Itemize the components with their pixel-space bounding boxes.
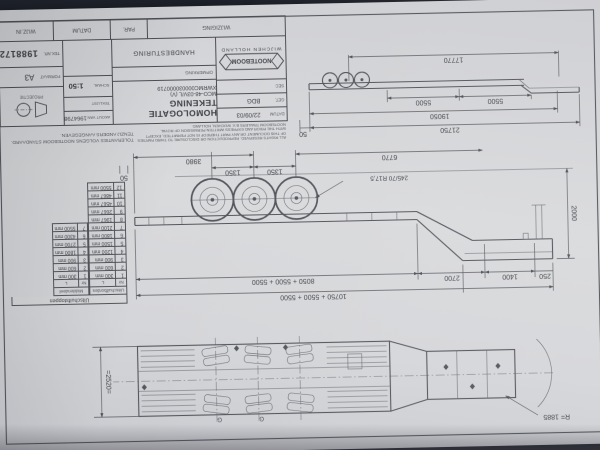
bordes-table: Uitschuifbordes Nr L 1300 mm2600 mm3900 … [87, 182, 127, 296]
plan-g-label-2: G [217, 416, 222, 422]
company-logo-cell: NOOTEBOOM WIJCHEN HOLLAND [216, 36, 285, 79]
overview-wheels [322, 72, 369, 88]
side-dims-lower: 1350 1350 50 6770 3980 [119, 146, 483, 214]
rev-datum-label: DATUM [53, 20, 110, 40]
opmerking-label: OPMERKING [112, 65, 216, 81]
dim-2700: 2700 [444, 274, 460, 281]
midden-subtitle: Middendeel [53, 287, 89, 296]
akout-value: 1964798 [64, 115, 87, 121]
table-cell: 600 mm [90, 262, 116, 271]
plan-hatch-rear [141, 350, 196, 412]
table-cell: 1967 mm [89, 214, 115, 223]
table-row: 2600 mm [53, 263, 89, 272]
table-cell: 6 [115, 230, 126, 238]
table-cell: 8 [115, 214, 126, 222]
teknr-label: TEK.NR. [38, 51, 62, 57]
datum-row: DATUM 22/09/03 [218, 106, 287, 121]
table-row: 51500 mm [89, 238, 126, 247]
overview-view: 21750 50 19050 5500 5500 17770 [297, 50, 580, 137]
table-row: 52700 mm [52, 239, 88, 248]
title-block-main: DATUM 22/09/03 GET. BDG SEC [0, 35, 288, 127]
table-cell: 300 mm [90, 270, 116, 279]
plan-radius-dim: R= 1885 [506, 394, 571, 420]
dim-1350a: 1350 [267, 167, 283, 174]
table-cell: 6 [78, 231, 88, 239]
dim-17770: 17770 [444, 56, 464, 63]
table-cell: 900 mm [53, 255, 79, 264]
table-cell: 11 [114, 190, 125, 198]
disclaimer-text: ALL RIGHTS RESERVED. REPRODUCTION OR DIS… [133, 121, 288, 143]
teklijst-label: TEKLIJST [84, 101, 112, 107]
get-value: BDG [247, 97, 261, 104]
table-row: 104567 mm [88, 198, 125, 207]
table-cell: 1800 mm [89, 230, 115, 239]
par-label: PAR. [110, 19, 147, 39]
dim-21750: 21750 [440, 126, 460, 133]
dim-3980: 3980 [186, 157, 202, 164]
bordes-subtitle: Uitschuifbordes [90, 286, 127, 295]
akout-row: AKOUT VAN 1964798 [64, 110, 112, 125]
table-cell: 1200 mm [89, 246, 115, 255]
table-cell: 1 [79, 271, 89, 279]
table-row: 61800 mm [89, 230, 126, 239]
table-row: 64300 mm [52, 231, 88, 240]
dim-50-side: 50 [120, 174, 128, 181]
landing-gear [532, 205, 547, 239]
table-row: 114867 mm [88, 190, 125, 199]
col-nr: Nr [79, 279, 89, 287]
table-cell: 7 [115, 222, 126, 230]
table-row: 1300 mm [53, 271, 89, 280]
table-cell: 2 [116, 262, 127, 270]
teknr-row: TEK.NR. 1988172 [0, 41, 62, 67]
photo-background: .ln{stroke:#53555c;stroke-width:1.1;fill… [0, 0, 600, 450]
side-dims-upper: 10750 + 5500 + 5500 250 1400 2700 8050 +… [135, 221, 553, 304]
side-dim-height: 2000 [555, 168, 578, 258]
dim-5500a: 5500 [487, 97, 503, 104]
table-cell: 4567 mm [88, 198, 114, 207]
table-cell: 5500 mm [52, 223, 78, 232]
title-block-right-column: PROJECTIE FORMAAT A3 TEK.NR. 1988172 [0, 41, 63, 126]
formaat-value: A3 [24, 73, 34, 82]
kingpin [523, 233, 528, 239]
table-cell: 3 [79, 255, 89, 263]
tyre-label: 245/70 R17,5 [315, 174, 408, 198]
table-cell: 4 [78, 247, 88, 255]
table-row: 125500 mm [88, 182, 125, 191]
tolerance-note: TOLERANTIES VOLGENS NOOTEBOOM STANDAARD.… [0, 124, 134, 146]
plan-hatch-front [327, 346, 388, 408]
col-l: L [53, 279, 79, 288]
dim-r1885: R= 1885 [543, 412, 570, 420]
dim-2000: 2000 [570, 205, 577, 221]
table-cell: 900 mm [89, 254, 115, 263]
table-cell: 5500 mm [88, 182, 114, 191]
dim-5500b: 5500 [415, 98, 431, 105]
col-nr: Nr [116, 278, 127, 286]
title-block-center-column: HOMOLOGATIE TEKENING MCO-48-03V/L (V) XW… [111, 38, 218, 124]
table-row: 92667 mm [88, 206, 125, 215]
table-cell: 12 [114, 182, 125, 190]
get-label: GET. [260, 97, 286, 103]
dim-19050: 19050 [430, 112, 450, 119]
title-block-scale-column: AKOUT VAN 1964798 TEKLIJST SCHAAL 1:50 [62, 40, 113, 125]
table-row: 3900 mm [53, 255, 89, 264]
sec-row: SEC [217, 78, 286, 93]
table-cell: 5 [78, 239, 88, 247]
table-cell: 3 [115, 254, 126, 262]
projection-symbol-icon [14, 100, 50, 119]
projectie-label: PROJECTIE [20, 94, 44, 99]
table-cell: 7 [78, 223, 88, 231]
plan-view: =2520= R= 1885 G G [92, 330, 570, 429]
schaal-row: SCHAAL 1:50 [63, 75, 111, 97]
table-cell: 2667 mm [88, 206, 114, 215]
datum-label: DATUM [261, 111, 287, 117]
table-cell: 1 [116, 270, 127, 278]
table-cell: 4 [115, 246, 126, 254]
col-l: L [90, 278, 116, 287]
title-block: ALL RIGHTS RESERVED. REPRODUCTION OR DIS… [0, 16, 288, 146]
company-location: WIJCHEN HOLLAND [220, 45, 281, 51]
company-name: NOOTEBOOM [231, 57, 271, 64]
dim-250: 250 [539, 272, 551, 279]
table-row: 2600 mm [90, 262, 127, 271]
table-cell: 5 [115, 238, 126, 246]
dim-2520: =2520= [104, 370, 111, 394]
get-row: GET. BDG [218, 92, 287, 107]
table-cell: 2100 mm [89, 222, 115, 231]
akout-label: AKOUT VAN [87, 115, 113, 121]
teklijst-row: TEKLIJST [64, 96, 112, 111]
extension-stop-tables: Uitschuifstoppen Uitschuifbordes Nr L 13… [9, 182, 128, 306]
drawing-title: HOMOLOGATIE TEKENING [113, 98, 217, 120]
drawing-title-cell: HOMOLOGATIE TEKENING MCO-48-03V/L (V) XW… [112, 79, 217, 124]
formaat-row: FORMAAT A3 [0, 66, 63, 87]
dim-1350b: 1350 [225, 168, 241, 175]
dim-6770: 6770 [382, 153, 398, 160]
table-row: 75500 mm [52, 223, 88, 232]
dim-tyre: 245/70 R17,5 [370, 174, 408, 182]
table-row: 81967 mm [89, 214, 126, 223]
side-view: 245/70 R17,5 10750 + 5500 + 5500 [119, 144, 578, 304]
dim-50-overview: 50 [299, 130, 307, 137]
schaal-value: 1:50 [68, 82, 83, 91]
table-cell: 4300 mm [52, 231, 78, 240]
table-cell: 2700 mm [52, 239, 78, 248]
table-row: 1300 mm [90, 270, 127, 279]
table-cell: 10 [114, 198, 125, 206]
dim-10750-sum: 10750 + 5500 + 5500 [280, 292, 347, 300]
nooteboom-logo-icon: NOOTEBOOM [218, 52, 284, 70]
title-block-left-column: DATUM 22/09/03 GET. BDG SEC [215, 36, 286, 121]
table-cell: 1800 mm [53, 247, 79, 256]
dim-8050-sum: 8050 + 5500 + 5500 [252, 277, 315, 285]
teknr-value: 1988172 [0, 49, 38, 60]
datum-value: 22/09/03 [236, 111, 260, 119]
table-row: 41800 mm [53, 247, 89, 256]
overview-dims: 21750 50 19050 5500 5500 17770 [297, 50, 580, 137]
midden-table: Middendeel Nr L 1300 mm2600 mm3900 mm418… [51, 222, 89, 296]
handbesturing-note: HANDBESTURING [112, 38, 216, 67]
table-cell: 2 [79, 263, 89, 271]
drawing-sheet: .ln{stroke:#53555c;stroke-width:1.1;fill… [0, 0, 600, 450]
sec-label: SEC [260, 83, 286, 89]
table-row: 41200 mm [89, 246, 126, 255]
formaat-label: FORMAAT [34, 74, 62, 80]
drawing-subtitle: MCO-48-03V/L (V) XWRMC000030000719 [113, 84, 217, 98]
table-cell: 4867 mm [88, 190, 114, 199]
table-cell: 300 mm [53, 271, 79, 280]
table-cell: 600 mm [53, 263, 79, 272]
wijzin-label: WIJZ.IN [0, 21, 53, 41]
table-cell: 9 [114, 206, 125, 214]
table-row: 72100 mm [89, 222, 126, 231]
schaal-label: SCHAAL [84, 83, 112, 89]
table-cell: 1500 mm [89, 238, 115, 247]
projection-cell: PROJECTIE [0, 86, 63, 126]
wijziging-label: WIJZIGING [147, 16, 285, 38]
dim-1400: 1400 [502, 272, 518, 279]
plan-g-label-1: G [259, 415, 264, 421]
table-row: 3900 mm [89, 254, 126, 263]
